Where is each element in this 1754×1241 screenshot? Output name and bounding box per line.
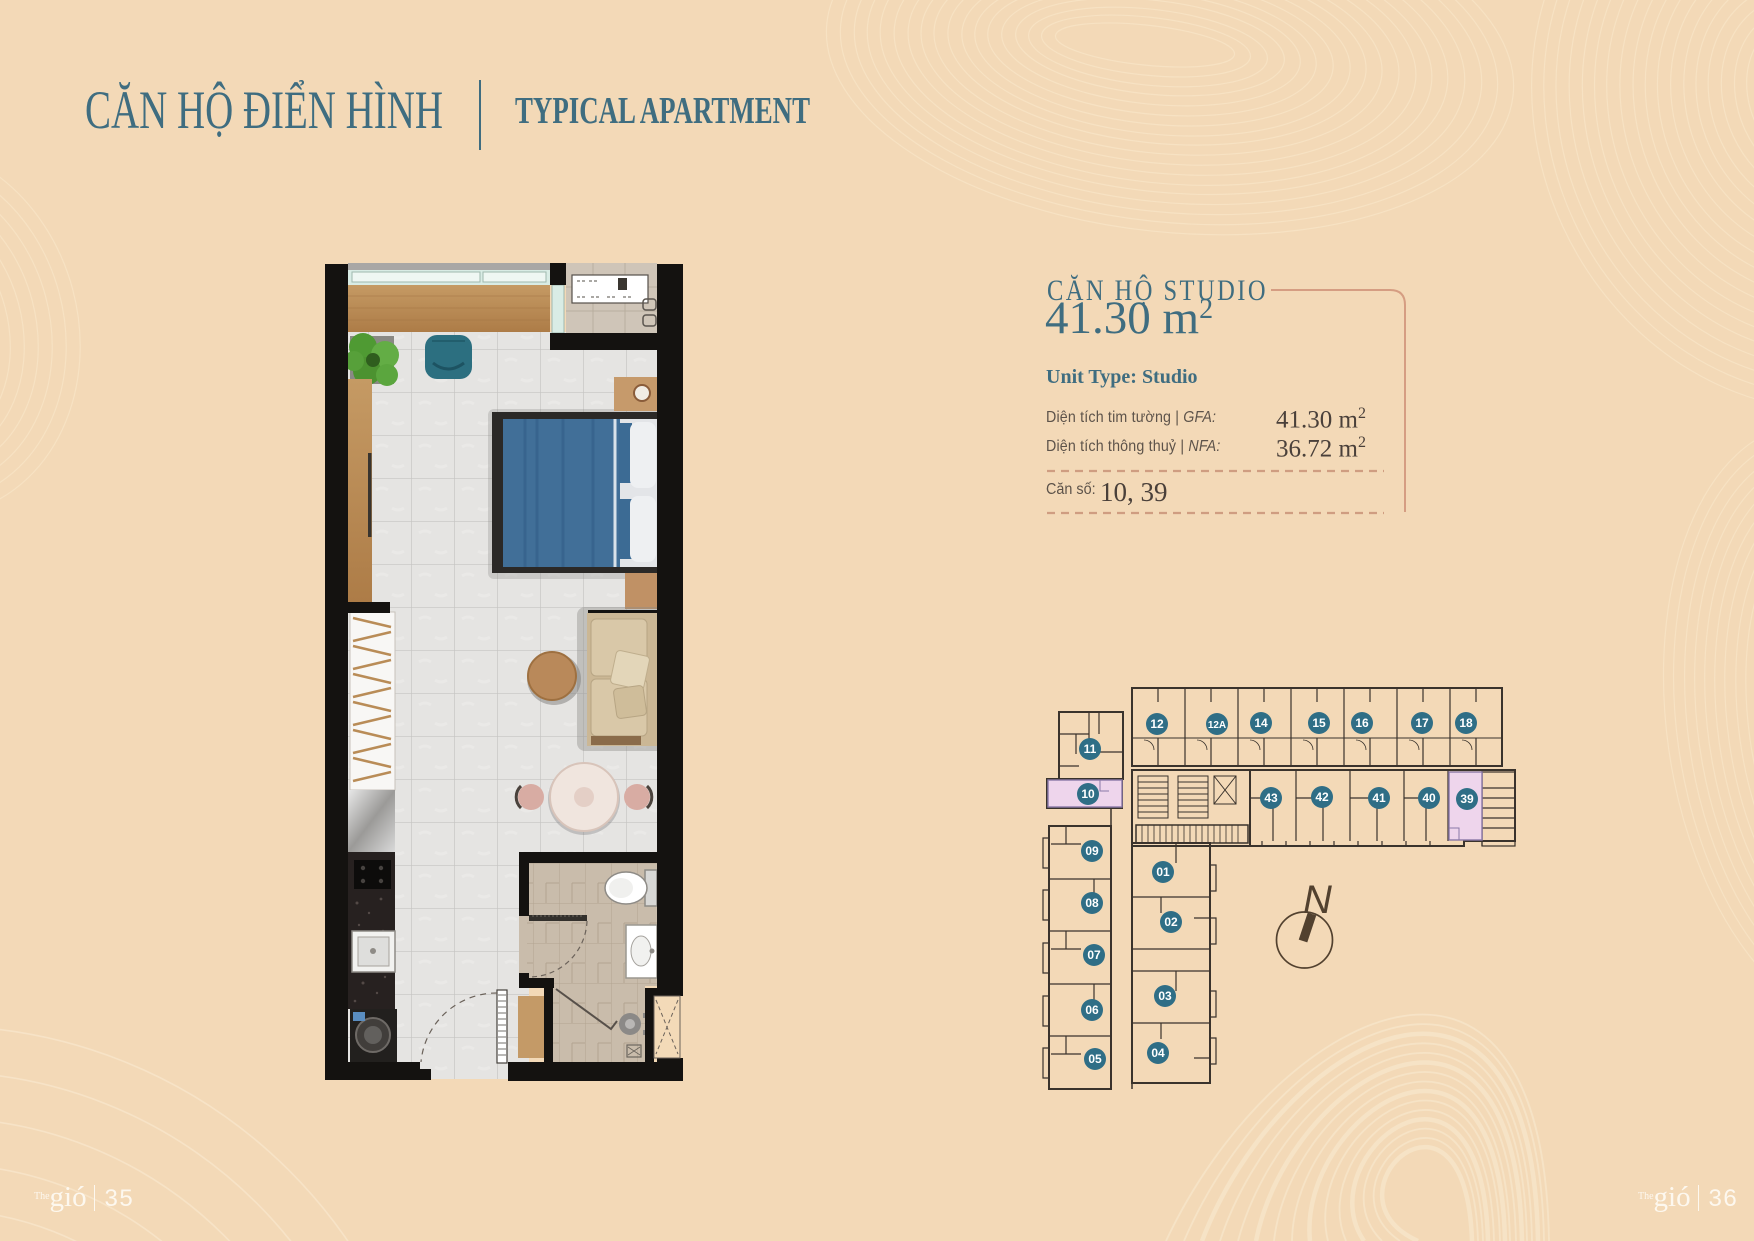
svg-text:12A: 12A: [1208, 720, 1226, 731]
svg-text:17: 17: [1415, 716, 1429, 730]
svg-text:02: 02: [1164, 915, 1178, 929]
svg-text:16: 16: [1355, 716, 1369, 730]
svg-text:43: 43: [1264, 791, 1278, 805]
svg-text:03: 03: [1158, 989, 1172, 1003]
svg-text:15: 15: [1312, 716, 1326, 730]
svg-text:18: 18: [1459, 716, 1473, 730]
svg-text:05: 05: [1088, 1052, 1102, 1066]
svg-text:08: 08: [1085, 896, 1099, 910]
svg-text:N: N: [1303, 878, 1332, 922]
svg-text:42: 42: [1315, 790, 1329, 804]
svg-text:01: 01: [1156, 865, 1170, 879]
svg-text:Unit Type: Studio: Unit Type: Studio: [1046, 366, 1198, 388]
svg-text:07: 07: [1087, 948, 1101, 962]
svg-text:39: 39: [1460, 792, 1474, 806]
svg-text:CĂN HỘ ĐIỂN HÌNH: CĂN HỘ ĐIỂN HÌNH: [85, 80, 443, 140]
svg-text:TYPICAL APARTMENT: TYPICAL APARTMENT: [515, 90, 810, 132]
svg-text:12: 12: [1150, 717, 1164, 731]
svg-text:40: 40: [1422, 791, 1436, 805]
svg-text:10: 10: [1081, 787, 1095, 801]
svg-text:04: 04: [1151, 1046, 1165, 1060]
svg-text:41.30 m2: 41.30 m2: [1045, 292, 1213, 344]
svg-text:09: 09: [1085, 844, 1099, 858]
svg-text:06: 06: [1085, 1003, 1099, 1017]
svg-text:11: 11: [1084, 742, 1097, 756]
svg-text:41: 41: [1372, 791, 1386, 805]
svg-text:14: 14: [1254, 716, 1268, 730]
